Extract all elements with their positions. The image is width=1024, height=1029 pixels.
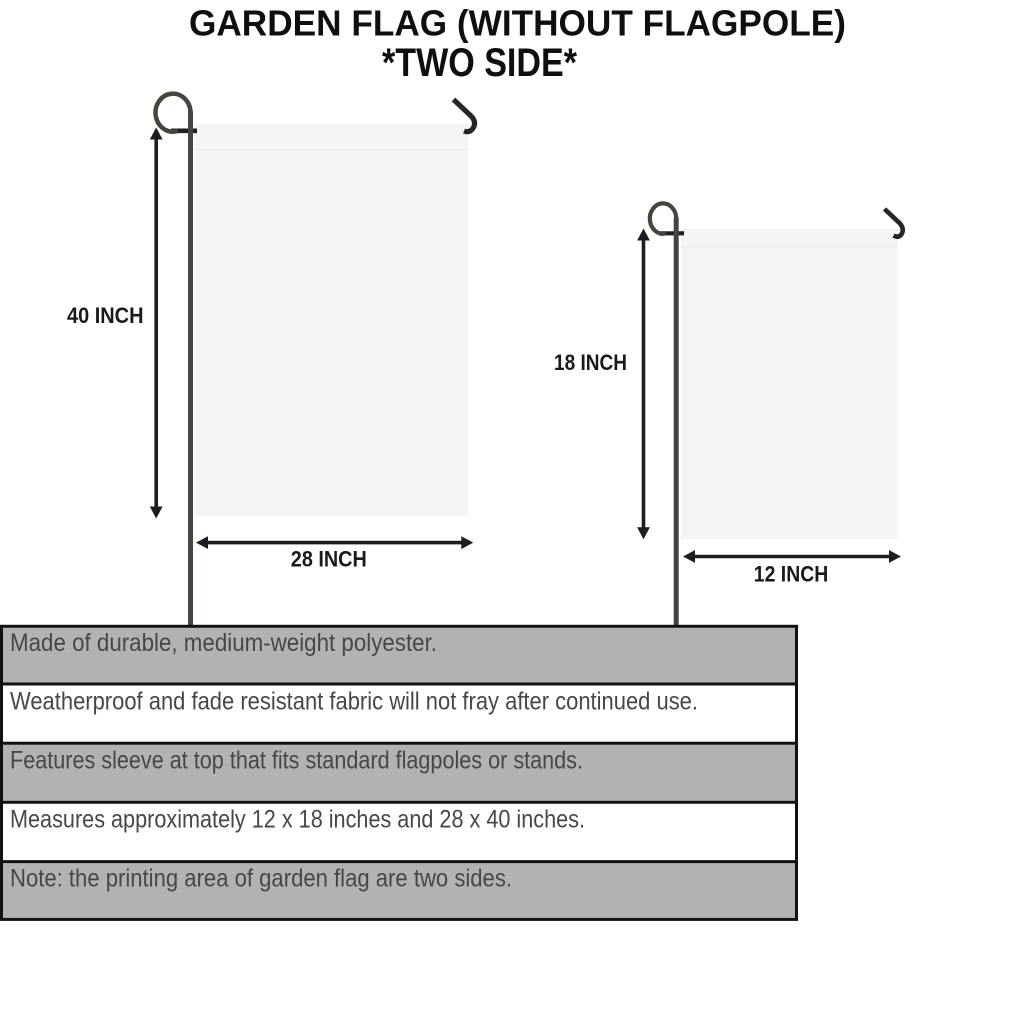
svg-text:18 INCH: 18 INCH — [554, 350, 627, 375]
svg-text:Made of durable, medium-weight: Made of durable, medium-weight polyester… — [10, 629, 437, 657]
svg-text:Weatherproof and fade resistan: Weatherproof and fade resistant fabric w… — [10, 688, 698, 716]
svg-text:*TWO SIDE*: *TWO SIDE* — [382, 41, 577, 85]
svg-text:40 INCH: 40 INCH — [67, 303, 144, 328]
svg-text:28 INCH: 28 INCH — [291, 546, 367, 571]
svg-text:GARDEN FLAG (WITHOUT FLAGPOLE): GARDEN FLAG (WITHOUT FLAGPOLE) — [189, 3, 846, 44]
svg-text:12 INCH: 12 INCH — [754, 561, 829, 586]
svg-text:Measures approximately 12 x 18: Measures approximately 12 x 18 inches an… — [10, 806, 585, 834]
svg-text:Note: the printing area of gar: Note: the printing area of garden flag a… — [10, 865, 512, 893]
svg-text:Features sleeve at top that fi: Features sleeve at top that fits standar… — [10, 747, 583, 775]
